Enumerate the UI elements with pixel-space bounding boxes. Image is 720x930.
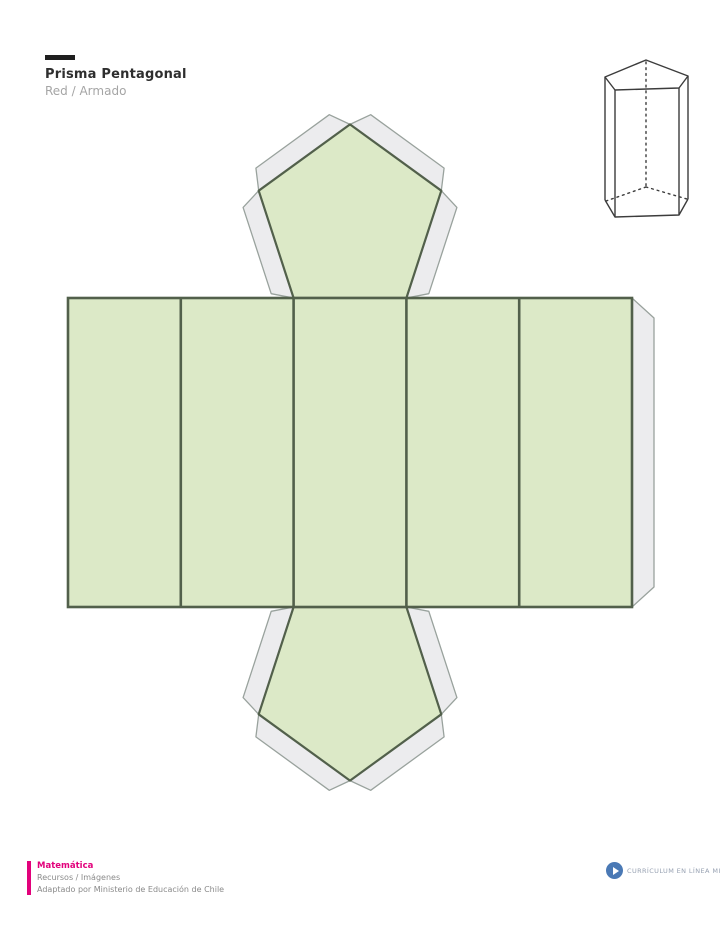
footer-text-block: Matemática Recursos / Imágenes Adaptado …	[37, 860, 224, 895]
play-circle-icon	[606, 862, 623, 879]
logo-text: Currículum en línea Mineduc	[627, 867, 720, 875]
side-glue-tab	[632, 298, 654, 607]
play-triangle-icon	[613, 867, 619, 875]
header-accent-bar	[45, 55, 75, 60]
footer-attribution: Adaptado por Ministerio de Educación de …	[37, 884, 224, 896]
header: Prisma Pentagonal Red / Armado	[45, 55, 187, 98]
mineduc-logo: Currículum en línea Mineduc	[606, 862, 720, 879]
pentagonal-prism-3d-icon	[605, 60, 688, 217]
footer: Matemática Recursos / Imágenes Adaptado …	[0, 855, 720, 930]
page-title: Prisma Pentagonal	[45, 67, 187, 82]
prism-net-group	[68, 115, 654, 791]
page-subtitle: Red / Armado	[45, 84, 187, 98]
worksheet-page: Prisma Pentagonal Red / Armado Matemátic…	[0, 0, 720, 930]
footer-accent-bar	[27, 861, 31, 895]
net-diagram	[0, 0, 720, 930]
footer-subject: Matemática	[37, 860, 224, 872]
rect-face-strip	[68, 298, 632, 607]
footer-resource-line: Recursos / Imágenes	[37, 872, 224, 884]
